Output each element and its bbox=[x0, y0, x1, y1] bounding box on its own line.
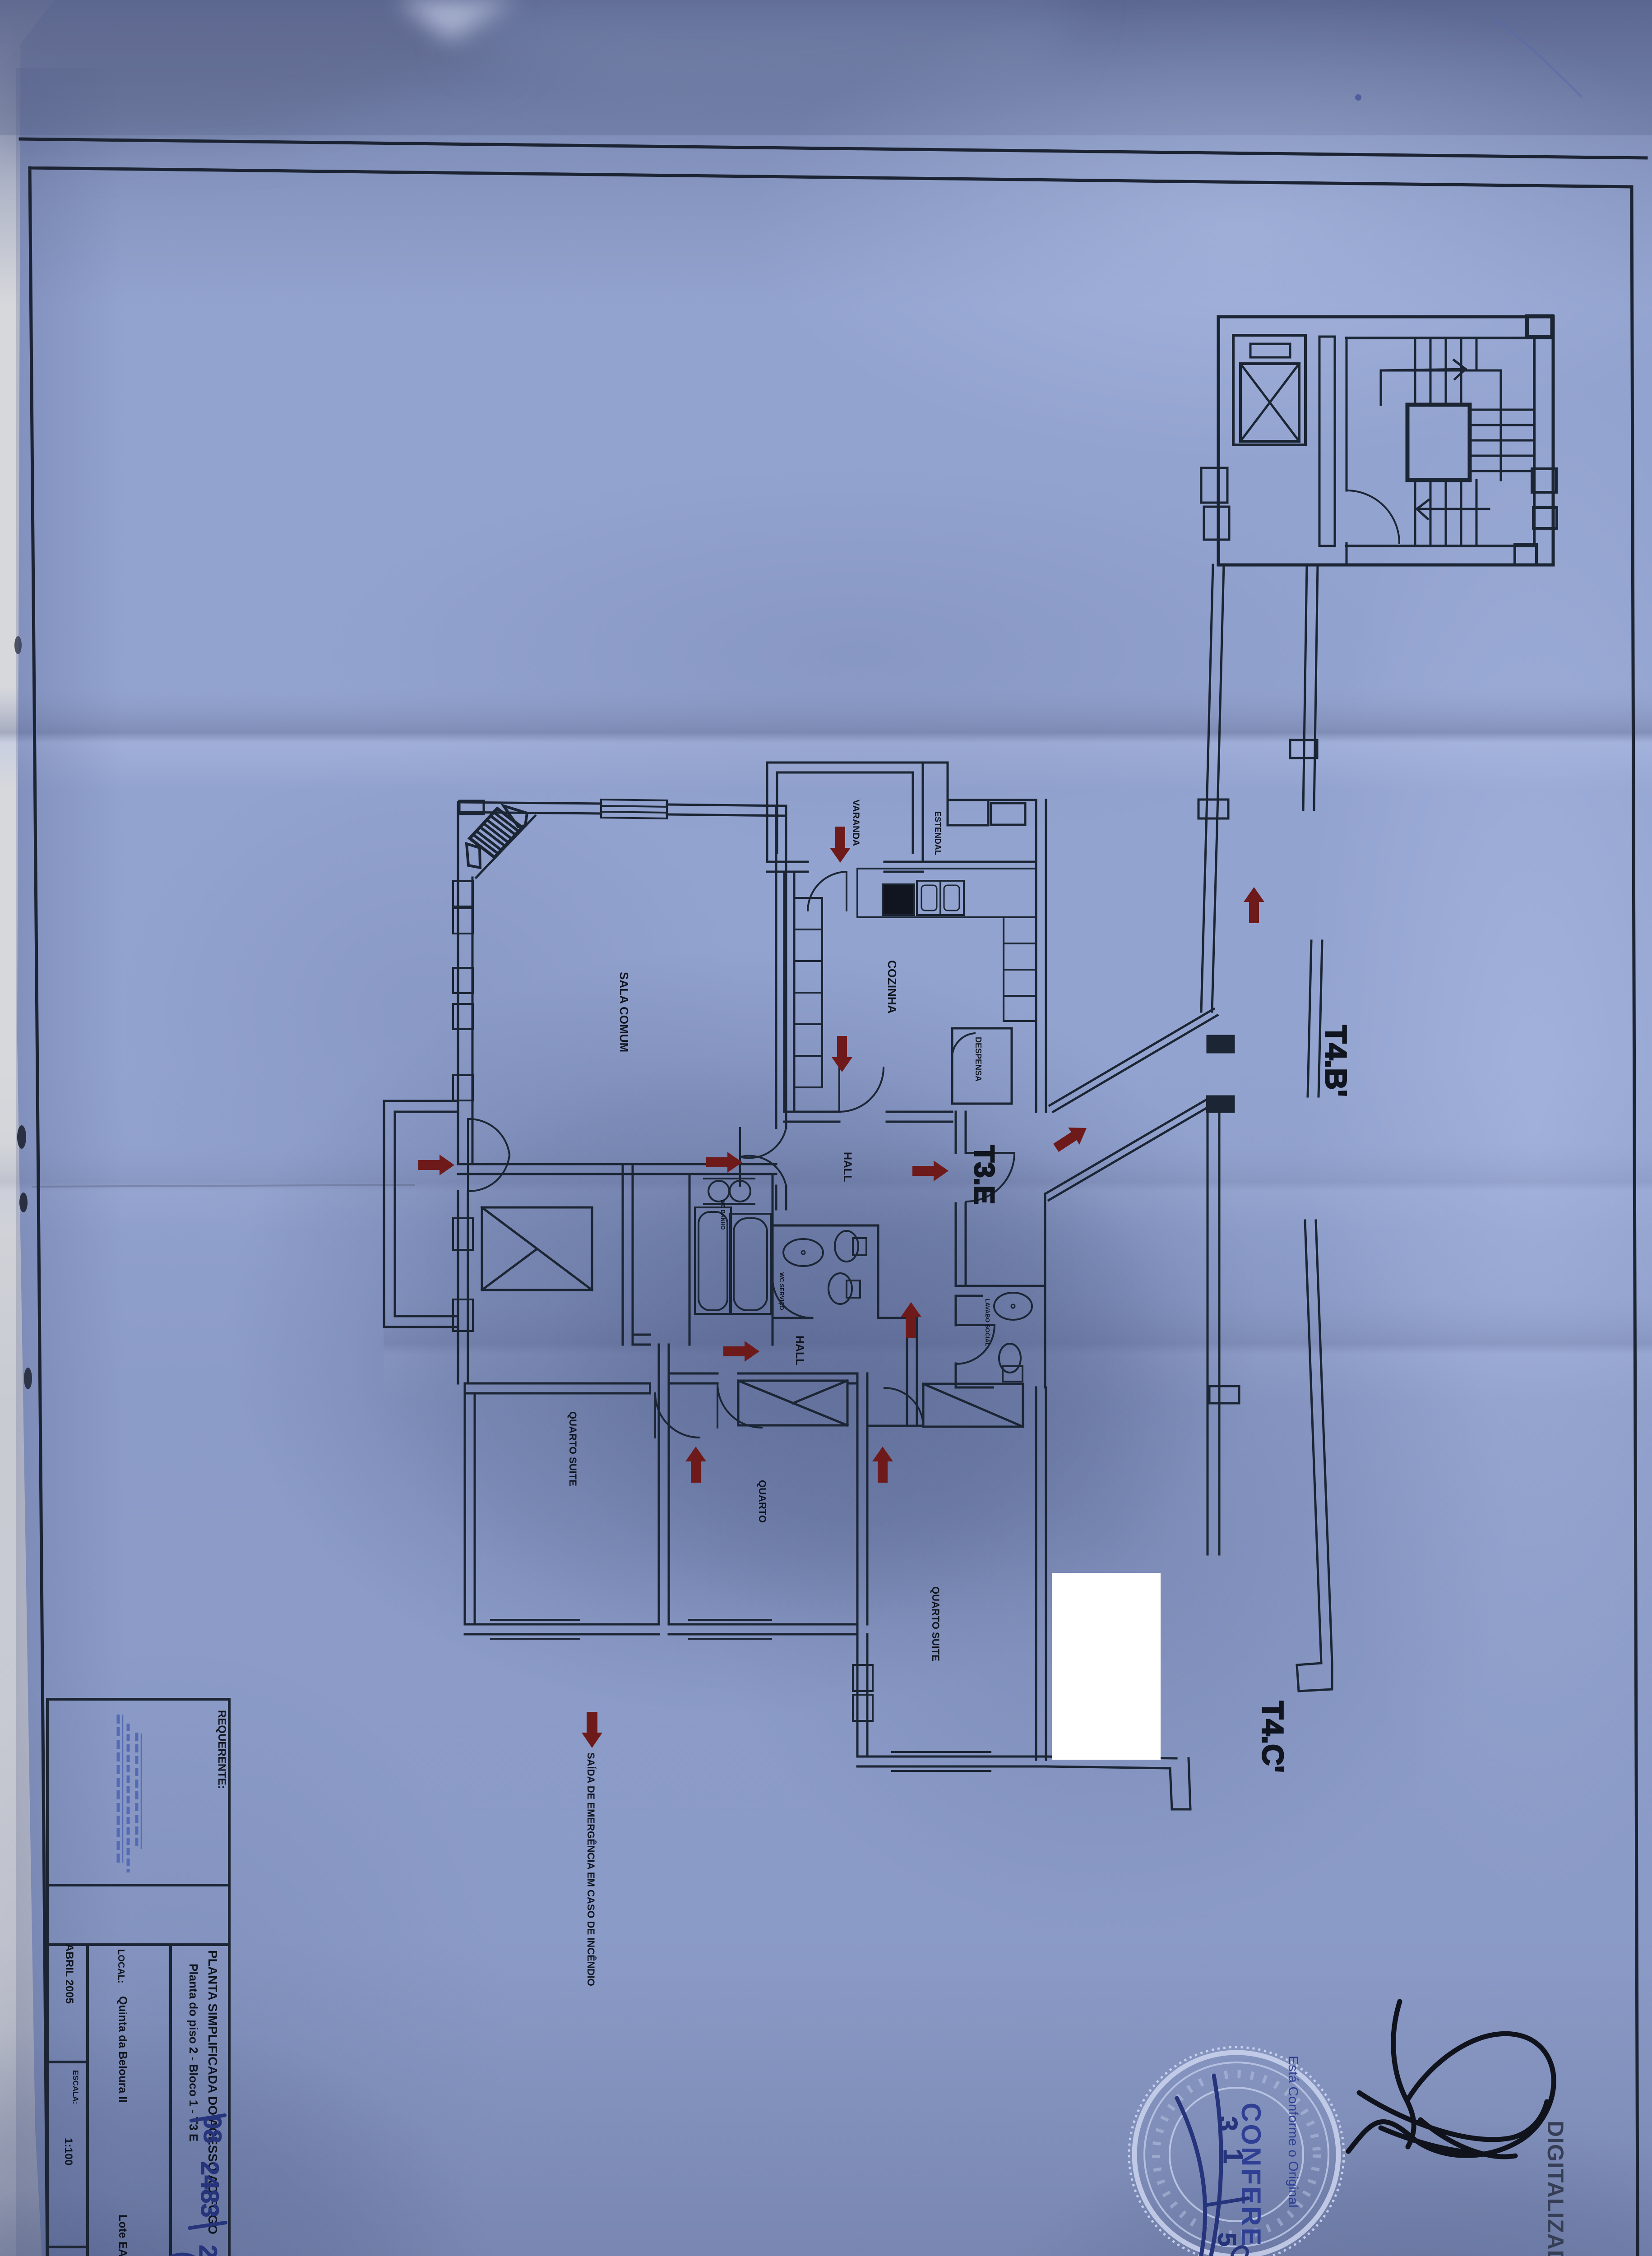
svg-text:2001: 2001 bbox=[194, 2245, 222, 2256]
svg-text:WC SERVIÇO: WC SERVIÇO bbox=[778, 1272, 785, 1310]
svg-text:2483: 2483 bbox=[196, 2161, 224, 2218]
svg-text:HALL: HALL bbox=[841, 1152, 854, 1182]
svg-text:QUARTO SUITE: QUARTO SUITE bbox=[567, 1411, 578, 1486]
svg-text:Quinta da Beloura II: Quinta da Beloura II bbox=[116, 1996, 129, 2103]
svg-text:DESPENSA: DESPENSA bbox=[974, 1037, 983, 1082]
svg-text:SAÍDA DE EMERGÊNCIA EM CASO DE: SAÍDA DE EMERGÊNCIA EM CASO DE INCÊNDIO bbox=[585, 1752, 597, 1986]
svg-text:VARANDA: VARANDA bbox=[851, 800, 861, 846]
svg-text:T3.E: T3.E bbox=[968, 1145, 1000, 1204]
svg-text:5: 5 bbox=[1213, 2233, 1241, 2247]
svg-text:HALL: HALL bbox=[793, 1336, 806, 1366]
svg-text:ESCALA:: ESCALA: bbox=[71, 2070, 80, 2104]
svg-text:QUARTO: QUARTO bbox=[757, 1480, 768, 1523]
svg-text:T4.B': T4.B' bbox=[1319, 1025, 1353, 1097]
svg-text:REQUERENTE:: REQUERENTE: bbox=[216, 1710, 228, 1789]
svg-text:Lote EA/B: Lote EA/B bbox=[116, 2214, 129, 2256]
svg-text:3: 3 bbox=[1212, 2116, 1243, 2131]
svg-text:ESTENDAL: ESTENDAL bbox=[933, 811, 942, 855]
svg-text:COZINHA: COZINHA bbox=[885, 960, 899, 1014]
svg-text:T4.C': T4.C' bbox=[1256, 1701, 1290, 1773]
svg-text:DIGITALIZADO: DIGITALIZADO bbox=[1543, 2121, 1568, 2256]
svg-text:WC BANHO: WC BANHO bbox=[720, 1199, 726, 1230]
svg-text:LOCAL:: LOCAL: bbox=[116, 1949, 126, 1983]
svg-text:Planta do piso 2 - Bloco 1 - T: Planta do piso 2 - Bloco 1 - T3 E bbox=[187, 1964, 200, 2141]
svg-text:LAVABO SOCIAL: LAVABO SOCIAL bbox=[984, 1299, 991, 1346]
svg-text:1: 1 bbox=[1218, 2149, 1248, 2164]
svg-text:ABRIL 2005: ABRIL 2005 bbox=[63, 1944, 75, 2004]
svg-text:Está Conforme o Original: Está Conforme o Original bbox=[1286, 2056, 1300, 2208]
svg-text:QUARTO SUITE: QUARTO SUITE bbox=[930, 1586, 941, 1661]
svg-text:1:100: 1:100 bbox=[62, 2138, 74, 2165]
svg-text:SALA COMUM: SALA COMUM bbox=[617, 972, 631, 1052]
